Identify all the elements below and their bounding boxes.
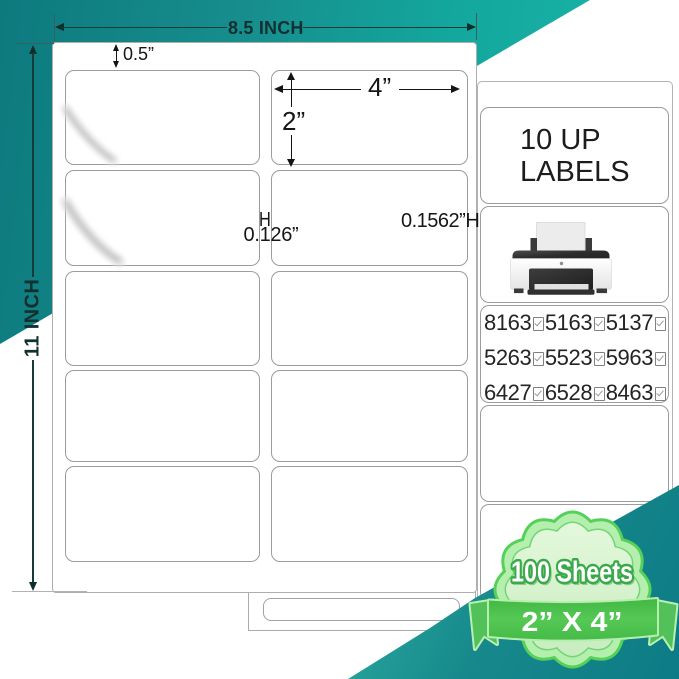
svg-text:100 Sheets: 100 Sheets xyxy=(511,557,633,589)
svg-text:2” X 4”: 2” X 4” xyxy=(522,606,623,637)
